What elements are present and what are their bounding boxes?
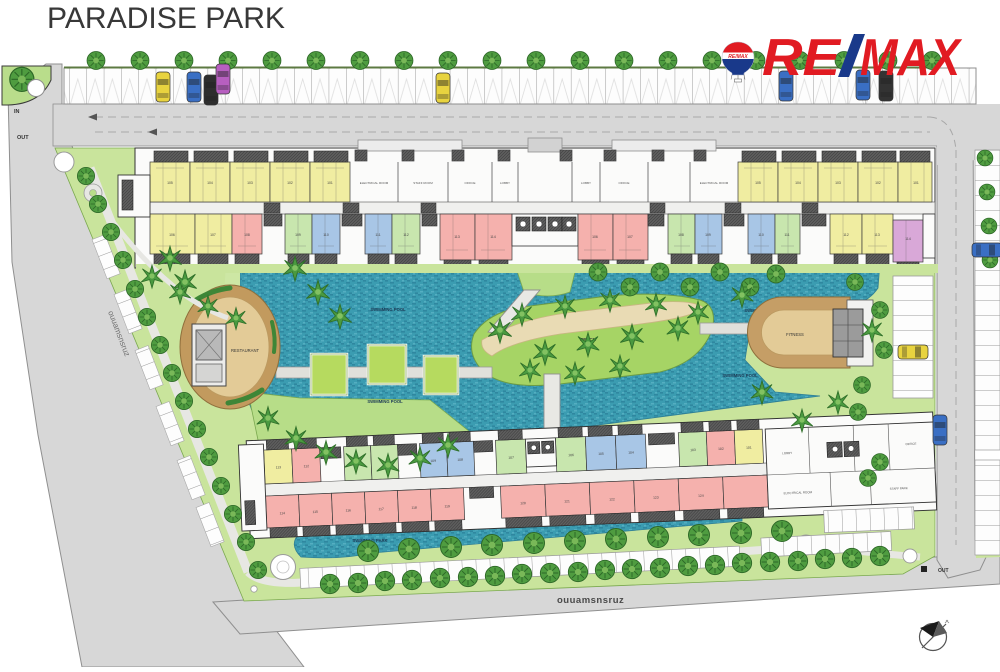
svg-text:STAFF PARK: STAFF PARK xyxy=(890,486,908,491)
svg-text:112: 112 xyxy=(843,233,849,237)
svg-text:OFFICE: OFFICE xyxy=(619,181,630,185)
svg-text:STAFF ROOM: STAFF ROOM xyxy=(413,181,433,185)
svg-text:106: 106 xyxy=(592,235,598,239)
svg-text:ouuamsnsruz: ouuamsnsruz xyxy=(557,595,624,606)
svg-text:LOBBY: LOBBY xyxy=(782,451,792,455)
svg-text:FITNESS: FITNESS xyxy=(786,332,804,337)
svg-text:RESTAURANT: RESTAURANT xyxy=(231,348,260,353)
svg-text:103: 103 xyxy=(835,181,841,185)
svg-text:LOBBY: LOBBY xyxy=(500,181,510,185)
svg-text:112: 112 xyxy=(403,233,409,237)
svg-text:118: 118 xyxy=(411,506,417,510)
svg-text:113: 113 xyxy=(276,465,282,469)
svg-text:101: 101 xyxy=(746,446,752,450)
svg-text:120: 120 xyxy=(520,501,526,505)
svg-text:IN: IN xyxy=(14,109,20,115)
svg-text:112: 112 xyxy=(304,464,310,468)
svg-text:104: 104 xyxy=(795,181,801,185)
svg-text:MAX: MAX xyxy=(860,29,963,87)
svg-text:103: 103 xyxy=(247,181,253,185)
svg-text:LOBBY: LOBBY xyxy=(581,181,591,185)
svg-text:108: 108 xyxy=(457,458,463,462)
svg-text:OUT: OUT xyxy=(17,135,29,141)
svg-text:113: 113 xyxy=(454,235,460,239)
svg-text:RE: RE xyxy=(762,29,841,87)
svg-text:116: 116 xyxy=(345,508,351,512)
svg-text:104: 104 xyxy=(207,181,213,185)
svg-text:107: 107 xyxy=(508,456,514,460)
svg-text:119: 119 xyxy=(444,504,450,508)
svg-text:PARADISE PARK: PARADISE PARK xyxy=(47,2,285,35)
svg-text:110: 110 xyxy=(323,233,329,237)
svg-text:ELECTRICAL ROOM: ELECTRICAL ROOM xyxy=(360,181,389,185)
svg-text:105: 105 xyxy=(598,452,604,456)
svg-text:SWIMMING POOL: SWIMMING POOL xyxy=(370,307,406,312)
svg-text:102: 102 xyxy=(287,181,293,185)
svg-text:102: 102 xyxy=(718,447,724,451)
svg-text:114: 114 xyxy=(490,235,496,239)
svg-text:117: 117 xyxy=(378,507,384,511)
svg-text:122: 122 xyxy=(609,497,615,501)
svg-text:103: 103 xyxy=(690,448,696,452)
svg-text:SWIMMING POOL: SWIMMING POOL xyxy=(722,373,758,378)
svg-text:114: 114 xyxy=(280,511,286,515)
svg-text:102: 102 xyxy=(875,181,881,185)
svg-text:123: 123 xyxy=(653,496,659,500)
svg-text:106: 106 xyxy=(568,453,574,457)
svg-text:105: 105 xyxy=(755,181,761,185)
svg-text:124: 124 xyxy=(698,494,704,498)
svg-text:111: 111 xyxy=(784,233,789,237)
svg-text:101: 101 xyxy=(913,181,919,185)
svg-text:ELECTRICAL ROOM: ELECTRICAL ROOM xyxy=(700,181,729,185)
svg-text:104: 104 xyxy=(628,451,634,455)
svg-text:SWIMMING POOL: SWIMMING POOL xyxy=(367,399,403,404)
svg-text:106: 106 xyxy=(169,233,175,237)
svg-text:101: 101 xyxy=(327,181,333,185)
svg-text:105: 105 xyxy=(167,181,173,185)
svg-text:121: 121 xyxy=(564,499,570,503)
svg-text:115: 115 xyxy=(312,510,318,514)
svg-text:109: 109 xyxy=(430,459,436,463)
svg-text:OFFICE: OFFICE xyxy=(465,181,476,185)
svg-text:OUT: OUT xyxy=(938,568,949,574)
svg-text:RE/MAX: RE/MAX xyxy=(728,54,748,60)
svg-text:OFFICE: OFFICE xyxy=(905,442,916,446)
svg-text:107: 107 xyxy=(627,235,633,239)
svg-text:107: 107 xyxy=(210,233,216,237)
